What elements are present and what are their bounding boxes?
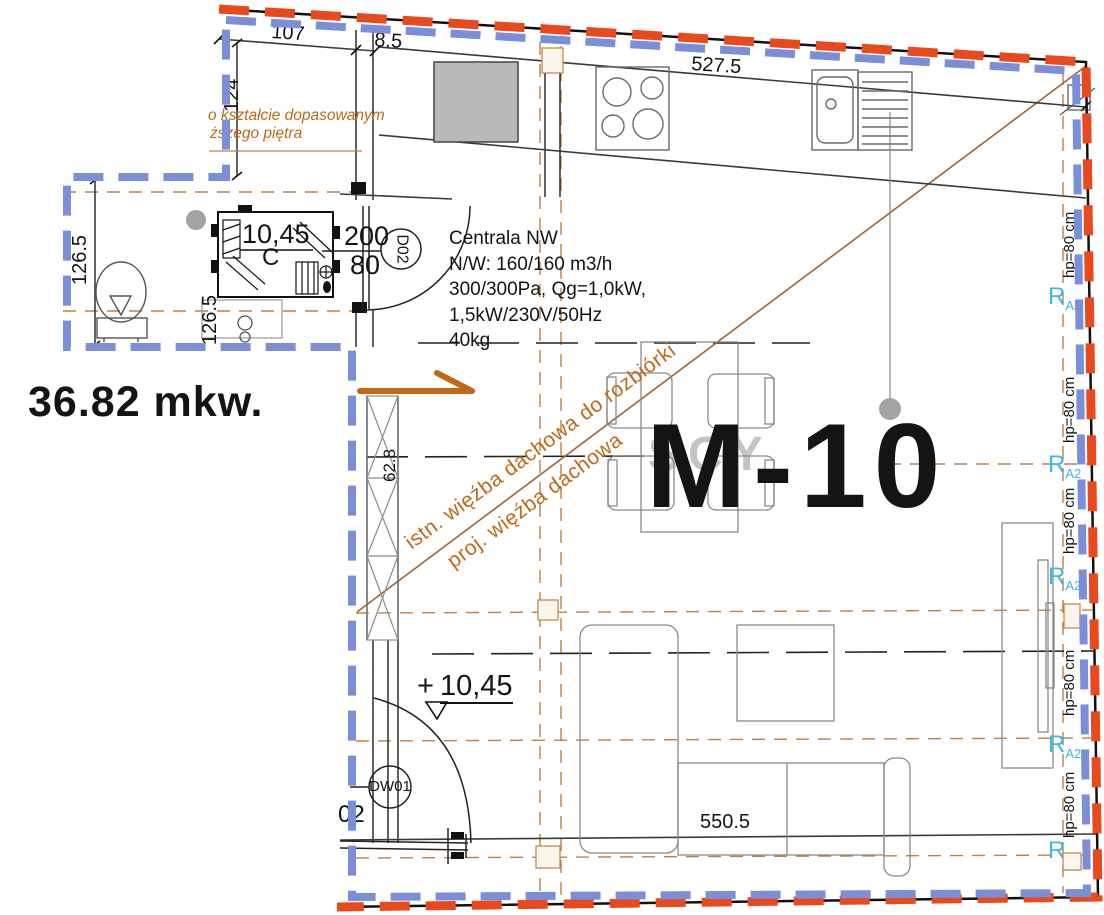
coffee-table (737, 625, 834, 721)
sideboard (1002, 523, 1054, 768)
window-sill-label-1: hp=80 cm (1062, 212, 1078, 278)
top-note-line2: ższego piętra (210, 126, 302, 142)
dim-527-5: 527.5 (691, 54, 742, 78)
washbasin (238, 316, 252, 350)
door-width-200: 200 (344, 222, 389, 250)
kitchen-appliance (434, 62, 518, 142)
hvac-line4: 1,5kW/230V/50Hz (449, 303, 646, 329)
door-label-dw01: DW01 (369, 779, 411, 795)
apartment-unit-label: M-10 (646, 412, 947, 520)
dim-126-5-mid: 126.5 (200, 295, 221, 345)
dim-107: 107 (271, 22, 306, 45)
section-marker-c: C (262, 245, 279, 270)
stove (596, 67, 669, 150)
window-marker-3: RA2 (1048, 563, 1081, 593)
hvac-line5: 40kg (449, 328, 646, 354)
corner-detail (1060, 85, 1095, 115)
dim-126-5-left: 126.5 (70, 235, 91, 285)
window-marker-2: RA2 (1048, 451, 1081, 481)
door-label-d02: D02 (393, 234, 410, 263)
hvac-note: Centrala NW N/W: 160/160 m3/h 300/300Pa,… (449, 226, 646, 354)
hvac-line2: N/W: 160/160 m3/h (449, 252, 646, 278)
sofa (580, 625, 910, 876)
level-plus-sign: + (417, 671, 434, 704)
door-height-80: 80 (350, 251, 380, 279)
dim-8-5: 8.5 (374, 30, 403, 53)
entrance-arrow (360, 373, 472, 391)
hvac-line3: 300/300Pa, Qg=1,0kW, (449, 277, 646, 303)
hvac-line1: Centrala NW (449, 226, 646, 252)
x-brace-wall (367, 396, 398, 640)
dim-550-5: 550.5 (700, 812, 750, 833)
roof-note-line1: istn. więźba dachowa do rozbiórki (401, 340, 680, 554)
window-marker-5: RA2 (1048, 837, 1081, 867)
window-marker-1: RA2 (1048, 283, 1081, 313)
window-sill-label-2: hp=80 cm (1062, 377, 1078, 443)
dim-62-8: 62.8 (381, 449, 399, 482)
window-sill-label-3: hp=80 cm (1062, 488, 1078, 554)
level-marker-triangle (426, 702, 447, 719)
window-sill-label-5: hp=80 cm (1062, 772, 1078, 838)
apartment-area-label: 36.82 mkw. (28, 380, 264, 425)
main-level-value: 10,45 (440, 671, 513, 704)
main-level-marker: +10,45 (417, 671, 513, 704)
dim-124: 124 (222, 79, 243, 112)
window-marker-4: RA2 (1048, 731, 1081, 761)
clipped-dim-02: 02 (338, 802, 365, 827)
floor-plan: o kształcie dopasowanym ższego piętra 10… (0, 0, 1104, 915)
toilet (96, 262, 147, 342)
window-sill-label-4: hp=80 cm (1062, 650, 1078, 716)
sink (812, 70, 912, 150)
